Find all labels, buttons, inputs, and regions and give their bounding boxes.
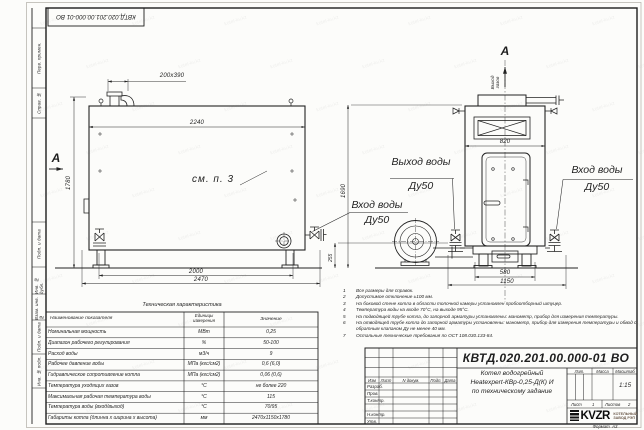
spec-row-unit: МПа (кгс/см2)	[184, 370, 224, 381]
drawing-sheet: kotel-kv.kzkotel-kv.kzkotel-kv.kzkotel-k…	[0, 0, 644, 430]
col-ndoc: N докум.	[393, 378, 429, 383]
margin-label-sprav: Справ. №	[32, 88, 46, 118]
spec-row-value: 50-100	[224, 338, 318, 349]
company-logo: KVZR КОТЕЛЬНЫЙ ЗАВОД РЭП	[570, 410, 637, 422]
section-mark-a: А	[48, 151, 64, 165]
spec-row-value: не более 220	[224, 381, 318, 392]
row-prov: Пров.	[367, 391, 379, 396]
dim-overall-length: 2470	[82, 277, 320, 283]
col-podp: Подп.	[429, 378, 443, 383]
spec-row-value: 0,6 (6,0)	[224, 359, 318, 370]
side-valve-front	[305, 227, 327, 241]
margin-label-inv-podl: Инв. № подл.	[32, 354, 46, 388]
spec-row-unit: °С	[184, 381, 224, 392]
sheets-label: Листов	[605, 402, 620, 407]
note-item: 6На отводящей трубе котла до запорной ар…	[338, 320, 638, 333]
note-item: 7Остальные технические требования по ОСТ…	[338, 333, 638, 339]
dim-shell-width: 2240	[89, 120, 305, 126]
format-label: Формат А3	[575, 424, 635, 429]
row-tkontr: Т.контр.	[367, 398, 385, 403]
pump-flange	[275, 232, 293, 250]
kvzr-logo-text: KVZR	[581, 410, 610, 422]
dim-chimney-opening: 200x390	[150, 73, 194, 79]
inspection-hatch	[474, 117, 530, 139]
legs-front	[93, 250, 298, 268]
spec-row-unit: мм	[184, 413, 224, 424]
spec-row-value: 0,25	[224, 327, 318, 338]
dim-nozzle-height: 255	[328, 254, 334, 262]
view-mark-a: А	[497, 44, 513, 58]
spec-header-value: Значение	[224, 317, 318, 322]
spec-row-unit: МВт	[184, 327, 224, 338]
spec-row-name: Максимальная рабочая температура воды	[48, 392, 182, 403]
spec-row-name: Габариты котла (длинна х ширина х высота…	[48, 413, 182, 424]
product-name-line2: Heatexpert-КВр-0,25-Д(К) И	[458, 379, 566, 388]
row-nkontr: Н.контр.	[367, 412, 386, 417]
spec-header-units: Единицы измерения	[185, 314, 223, 324]
spec-row-name: Температура воды (вход/выход)	[48, 402, 182, 413]
sheets-value: 2	[628, 402, 630, 407]
product-name-line3: по техническому задание	[458, 388, 566, 397]
spec-row-value: 0,06 (0,6)	[224, 370, 318, 381]
margin-label-podp-data-2: Подп. и дата	[32, 320, 46, 354]
row-razrab: Разраб.	[367, 384, 383, 389]
spec-row-unit: °С	[184, 402, 224, 413]
spec-header-name: Наименование показателя	[50, 316, 182, 321]
spec-row-name: Диапазон рабочего регулирования	[48, 338, 182, 349]
masshtab-label: Масштаб	[613, 369, 637, 374]
water-outlet-label: Выход воды	[386, 156, 456, 168]
dim-leg-span: 2000	[99, 269, 293, 275]
margin-label-perv-primen: Перв. примен.	[32, 28, 46, 88]
water-inlet-front-label: Вход воды	[344, 199, 410, 211]
dim-base-width: 580	[475, 270, 535, 276]
sheet-value: 1	[592, 402, 594, 407]
drain-valve	[93, 229, 106, 246]
scale-value: 1:15	[613, 382, 637, 389]
see-note-leader	[240, 171, 267, 185]
door-handle	[484, 201, 500, 205]
spec-row-name: Расход воды	[48, 349, 182, 360]
gas-outlet-label: Выход газов	[490, 75, 500, 90]
product-name-line1: Котел водогрейный	[458, 370, 566, 379]
dim-overall-width: 1150	[448, 279, 566, 285]
water-inlet-front-size: Ду50	[344, 214, 410, 226]
air-vent-left	[453, 108, 465, 114]
dim-side-height: 1690	[341, 184, 347, 198]
spec-row-name: Номинальная мощность	[48, 327, 182, 338]
spec-row-value: 9	[224, 349, 318, 360]
gas-collar	[478, 95, 526, 106]
sheet-label: Лист	[571, 402, 582, 407]
furnace-door	[482, 153, 530, 246]
spec-row-name: Рабочее давление воды	[48, 359, 182, 370]
title-doc-number: КВТД.020.201.00.000-01 ВО	[459, 351, 633, 365]
col-data: Дата	[443, 378, 457, 383]
technical-notes: 1Все размеры для справок.2Допустимое отк…	[338, 288, 638, 339]
spec-row-value: 2470х1150х1780	[224, 413, 318, 424]
top-stamp: КВТД.020.201.00.000-01 ВО	[48, 8, 144, 26]
col-izm: Изм	[365, 378, 379, 383]
row-utv: Утв.	[367, 419, 377, 424]
weld-markers	[98, 132, 297, 202]
spec-row-unit: МПа (кгс/см2)	[184, 359, 224, 370]
dim-side-top-width: 820	[465, 139, 545, 145]
margin-label-podp-data-1: Подп. и дата	[32, 222, 46, 267]
spec-row-unit: °С	[184, 392, 224, 403]
gas-duct	[526, 96, 564, 106]
company-name: КОТЕЛЬНЫЙ ЗАВОД РЭП	[613, 412, 637, 420]
water-inlet-side-size: Ду50	[561, 181, 633, 193]
spec-row-value: 70/95	[224, 402, 318, 413]
spec-row-unit: %	[184, 338, 224, 349]
air-vent-right	[545, 108, 557, 114]
left-nozzle	[84, 199, 89, 213]
chimney-connection	[107, 92, 134, 106]
spec-row-unit: м3/ч	[184, 349, 224, 360]
dim-overall-height: 1780	[66, 176, 72, 190]
margin-label-vzam-inv: Взам. инв. №	[32, 294, 46, 320]
kvzr-logo-icon	[570, 410, 579, 421]
water-valve-inlet	[545, 230, 562, 252]
water-outlet-size: Ду50	[386, 180, 456, 192]
spec-row-name: Гидравлическое сопротивление котла	[48, 370, 182, 381]
water-inlet-side-label: Вход воды	[561, 164, 633, 176]
spec-row-name: Температура уходящих газов	[48, 381, 182, 392]
spec-table-title: Техническая характеристика	[46, 302, 318, 308]
lit-label: Лит.	[567, 369, 592, 374]
massa-label: Масса	[592, 369, 613, 374]
margin-label-inv-dubl: Инв. № дубл.	[32, 267, 46, 294]
col-list: Лист	[379, 378, 393, 383]
spec-row-value: 115	[224, 392, 318, 403]
see-note-label: см. п. 3	[185, 174, 241, 185]
lifting-lugs	[99, 99, 293, 106]
